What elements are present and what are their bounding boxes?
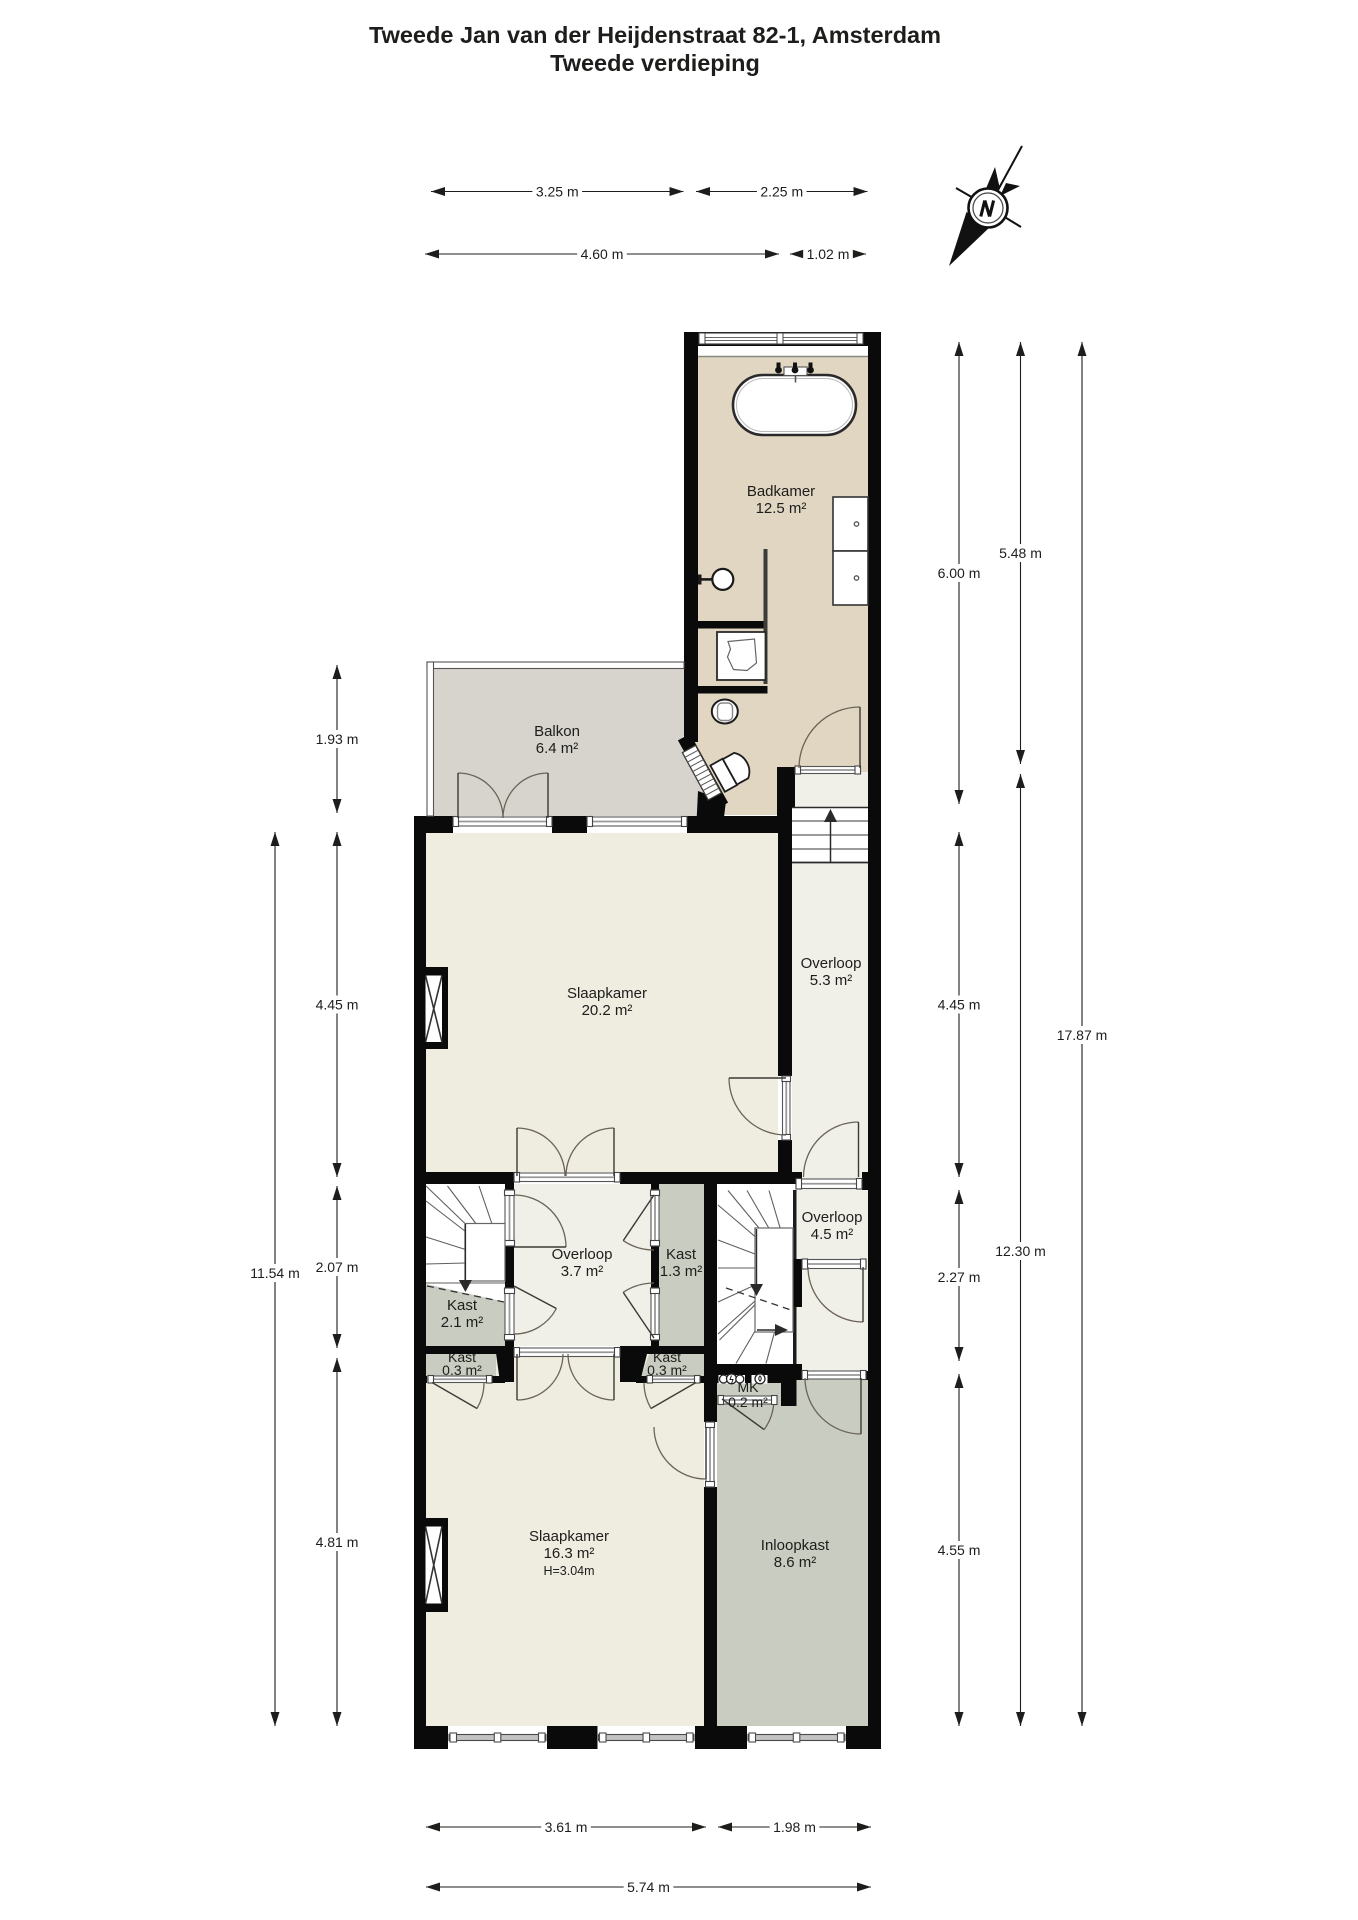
svg-text:4.45 m: 4.45 m <box>938 997 981 1013</box>
svg-text:6.00 m: 6.00 m <box>938 565 981 581</box>
svg-text:4.60 m: 4.60 m <box>581 246 624 262</box>
svg-text:4.55 m: 4.55 m <box>938 1542 981 1558</box>
svg-text:17.87 m: 17.87 m <box>1057 1027 1108 1043</box>
svg-text:3.7 m²: 3.7 m² <box>561 1263 604 1280</box>
svg-text:Slaapkamer: Slaapkamer <box>567 985 647 1002</box>
svg-text:11.54 m: 11.54 m <box>250 1265 300 1281</box>
svg-text:4.81 m: 4.81 m <box>316 1534 359 1550</box>
svg-text:0.2 m²: 0.2 m² <box>728 1394 768 1410</box>
svg-text:Slaapkamer: Slaapkamer <box>529 1528 609 1545</box>
svg-text:20.2 m²: 20.2 m² <box>582 1002 633 1019</box>
svg-text:3.61 m: 3.61 m <box>545 1819 588 1835</box>
svg-text:3.25 m: 3.25 m <box>536 184 579 200</box>
svg-text:12.30 m: 12.30 m <box>995 1243 1046 1259</box>
svg-text:Balkon: Balkon <box>534 723 580 740</box>
svg-text:Tweede verdieping: Tweede verdieping <box>550 50 760 76</box>
svg-text:Kast: Kast <box>666 1246 697 1263</box>
svg-text:5.74 m: 5.74 m <box>627 1879 670 1895</box>
svg-text:2.1 m²: 2.1 m² <box>441 1314 484 1331</box>
svg-text:2.27 m: 2.27 m <box>938 1269 981 1285</box>
svg-text:4.45 m: 4.45 m <box>316 997 359 1013</box>
svg-text:2.07 m: 2.07 m <box>316 1259 359 1275</box>
svg-text:MK: MK <box>738 1379 760 1395</box>
svg-text:1.02 m: 1.02 m <box>807 246 850 262</box>
svg-text:Badkamer: Badkamer <box>747 483 815 500</box>
svg-text:5.48 m: 5.48 m <box>999 545 1042 561</box>
svg-text:2.25 m: 2.25 m <box>760 184 803 200</box>
svg-text:1.93 m: 1.93 m <box>316 731 359 747</box>
svg-text:12.5 m²: 12.5 m² <box>756 500 807 517</box>
svg-text:8.6 m²: 8.6 m² <box>774 1554 817 1571</box>
svg-text:1.98 m: 1.98 m <box>773 1819 816 1835</box>
svg-text:Overloop: Overloop <box>802 1209 863 1226</box>
svg-text:Kast: Kast <box>447 1297 478 1314</box>
svg-text:Inloopkast: Inloopkast <box>761 1537 830 1554</box>
svg-text:16.3 m²: 16.3 m² <box>544 1545 595 1562</box>
svg-text:Overloop: Overloop <box>801 955 862 972</box>
svg-text:H=3.04m: H=3.04m <box>543 1564 594 1578</box>
svg-text:4.5 m²: 4.5 m² <box>811 1226 854 1243</box>
svg-text:Tweede Jan van der Heijdenstra: Tweede Jan van der Heijdenstraat 82-1, A… <box>369 22 941 48</box>
svg-text:Overloop: Overloop <box>552 1246 613 1263</box>
svg-text:5.3 m²: 5.3 m² <box>810 972 853 989</box>
svg-text:6.4 m²: 6.4 m² <box>536 740 579 757</box>
svg-text:1.3 m²: 1.3 m² <box>660 1263 703 1280</box>
